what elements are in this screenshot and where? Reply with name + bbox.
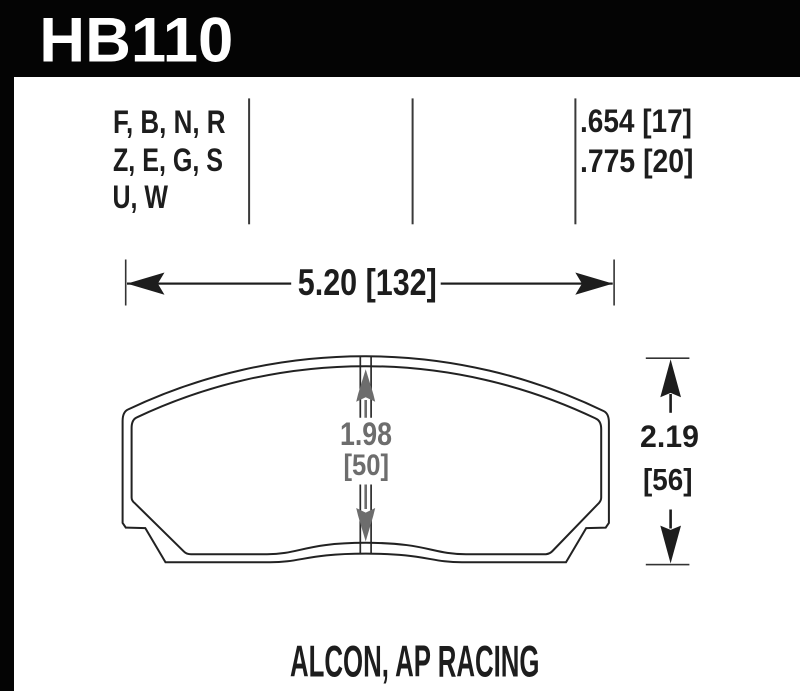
svg-text:.654 [17]: .654 [17]: [580, 103, 692, 139]
svg-text:5.20 [132]: 5.20 [132]: [298, 262, 437, 303]
svg-text:2.19: 2.19: [640, 418, 699, 454]
svg-text:U, W: U, W: [113, 179, 169, 215]
svg-text:[50]: [50]: [344, 449, 390, 482]
svg-text:1.98: 1.98: [340, 416, 392, 452]
svg-text:[56]: [56]: [643, 462, 693, 497]
svg-text:.775 [20]: .775 [20]: [580, 143, 694, 179]
svg-text:F, B, N, R: F, B, N, R: [113, 104, 226, 140]
svg-text:ALCON, AP RACING: ALCON, AP RACING: [290, 637, 540, 687]
svg-text:Z, E, G, S: Z, E, G, S: [113, 142, 223, 178]
svg-text:HB110: HB110: [39, 5, 233, 75]
